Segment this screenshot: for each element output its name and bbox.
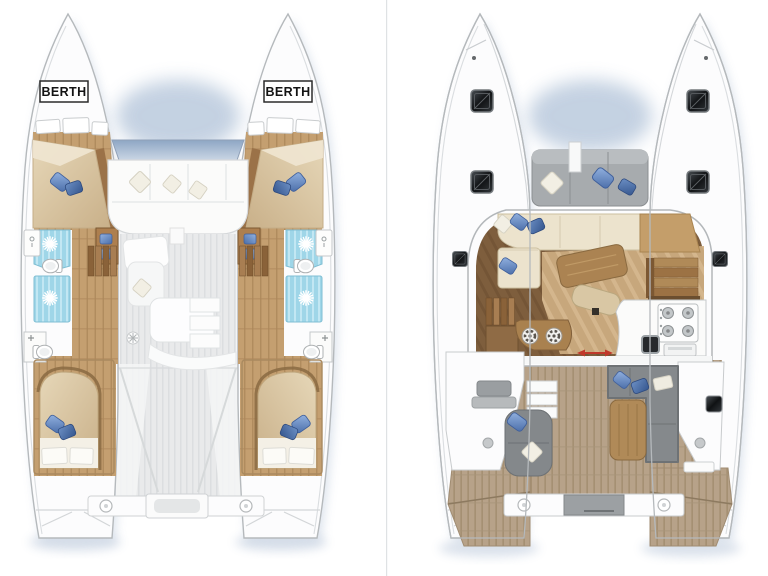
bar-stool-icon bbox=[546, 328, 562, 344]
berth-label-starboard-text: BERTH bbox=[265, 85, 310, 99]
chart-desk bbox=[640, 214, 700, 252]
floorplan-canvas: BERTH BERTH bbox=[0, 0, 768, 576]
deck-hatch-icon bbox=[453, 252, 468, 267]
saloon-footprint bbox=[120, 228, 236, 370]
deck-hatch-icon bbox=[687, 90, 709, 112]
hull-window bbox=[706, 396, 722, 412]
cleat-icon bbox=[658, 499, 670, 511]
cleat-icon bbox=[240, 500, 252, 512]
cleat-icon bbox=[518, 499, 530, 511]
aft-deck bbox=[116, 364, 240, 498]
stair-landing bbox=[486, 326, 518, 354]
deck-hatch-icon bbox=[471, 90, 493, 112]
coachroof-saloon bbox=[468, 210, 712, 366]
galley bbox=[616, 300, 706, 356]
transom-beam bbox=[88, 494, 264, 518]
deck-hatch-icon bbox=[687, 171, 709, 193]
starboard-stairs bbox=[646, 258, 700, 306]
deck-fitting bbox=[483, 438, 493, 448]
forward-sunpad bbox=[532, 142, 648, 206]
bow-fittings bbox=[466, 40, 714, 60]
panel-divider bbox=[386, 0, 387, 576]
deck-hatch-icon bbox=[713, 252, 728, 267]
mast-post bbox=[592, 308, 599, 315]
berth-label-port-text: BERTH bbox=[41, 85, 86, 99]
berth-label-starboard: BERTH bbox=[264, 81, 312, 102]
forward-cockpit bbox=[108, 140, 248, 234]
side-steps bbox=[527, 381, 557, 392]
catamaran-floorplans: BERTH BERTH bbox=[0, 0, 768, 576]
vent-icon bbox=[127, 332, 139, 344]
transom-beam bbox=[504, 494, 684, 516]
berth-label-port: BERTH bbox=[40, 81, 88, 102]
deck-fitting bbox=[695, 438, 705, 448]
deck-hatch-small bbox=[684, 462, 714, 472]
forward-cockpit-sofa bbox=[108, 160, 248, 234]
deck-hatch-icon bbox=[471, 171, 493, 193]
cleat-icon bbox=[100, 500, 112, 512]
anchor-locker-lid bbox=[569, 142, 581, 172]
helm-seat bbox=[477, 381, 511, 396]
